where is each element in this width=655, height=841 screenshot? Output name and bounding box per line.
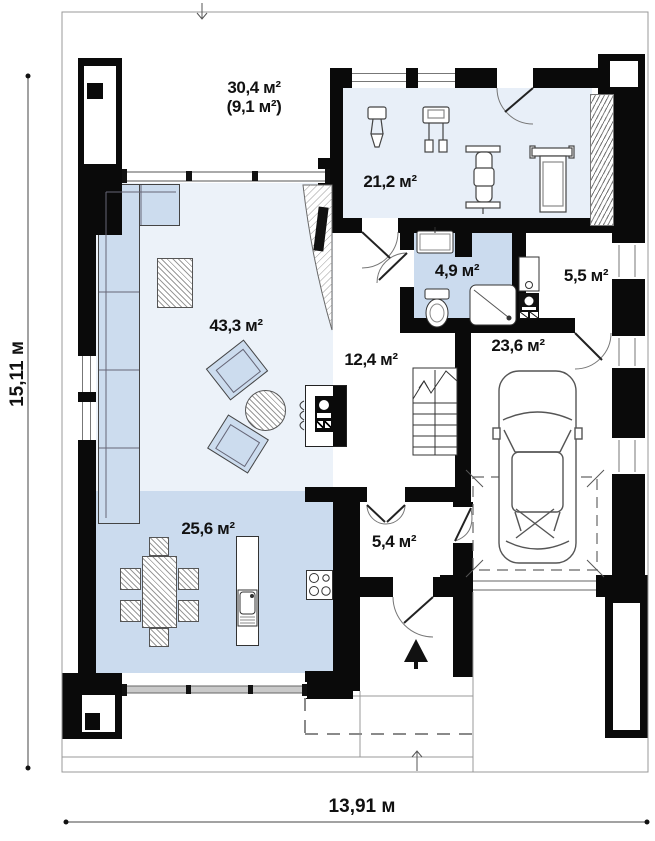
round-coffee-table — [245, 390, 286, 431]
wall-segment — [453, 502, 473, 507]
sliding-glass-door — [122, 682, 307, 698]
room-label-entry: 5,4 м² — [372, 532, 416, 552]
window — [78, 402, 96, 440]
window — [418, 68, 455, 88]
cooktop — [306, 570, 333, 600]
window — [612, 438, 645, 474]
room-label-gym: 21,2 м² — [363, 172, 416, 192]
wall-segment — [455, 222, 472, 257]
fireplace-vent — [317, 421, 323, 428]
wall-segment — [512, 222, 526, 332]
dining-chair — [178, 600, 199, 622]
wall-segment — [453, 543, 473, 577]
dimension-line-bottom — [64, 820, 650, 825]
terrace-area-secondary: (9,1 м²) — [227, 97, 282, 116]
room-label-utility: 5,5 м² — [564, 266, 608, 286]
door-opening — [575, 318, 612, 333]
room-label-terrace: 30,4 м² (9,1 м²) — [227, 78, 282, 116]
fireplace-side-panel — [333, 386, 346, 446]
rug — [157, 258, 193, 308]
gym-floor — [343, 88, 592, 218]
door-opening — [362, 218, 398, 233]
parking-zone — [473, 477, 597, 570]
window — [612, 243, 645, 279]
total-height-dimension: 15,11 м — [7, 314, 29, 434]
fireplace-tray — [317, 413, 331, 418]
staircase — [413, 368, 457, 455]
pillar-notch — [610, 61, 638, 87]
dining-chair — [149, 628, 169, 647]
pillar-window — [84, 66, 116, 164]
wall-segment — [596, 575, 648, 597]
total-width-dimension: 13,91 м — [329, 796, 396, 818]
wall-segment — [433, 577, 473, 597]
radiator — [590, 94, 614, 226]
floor-plan: 30,4 м² (9,1 м²) 21,2 м² 43,3 м² 12,4 м²… — [0, 0, 655, 841]
boundary-arrow-top — [197, 3, 207, 19]
driveway-pillar-inner — [613, 603, 640, 730]
wall-segment — [405, 487, 457, 502]
dining-table — [142, 556, 177, 628]
wall-segment — [455, 333, 471, 502]
entrance-arrow — [404, 639, 428, 669]
wall-segment — [305, 487, 367, 502]
wall-segment — [333, 577, 393, 597]
wall-segment — [453, 597, 473, 677]
door-opening — [400, 250, 414, 287]
parking-zone-corner-marks — [466, 470, 604, 577]
wall-segment — [78, 230, 96, 673]
window — [612, 336, 645, 368]
pillar-core — [87, 83, 103, 99]
garage-door — [473, 575, 596, 597]
glass-wall — [122, 169, 330, 183]
dining-chair — [120, 568, 141, 590]
dining-chair — [149, 537, 169, 556]
room-label-dining: 25,6 м² — [181, 519, 234, 539]
kitchen-island — [236, 536, 259, 646]
room-label-bathroom: 4,9 м² — [435, 261, 479, 281]
window — [352, 68, 406, 88]
dining-chair — [120, 600, 141, 622]
terrace-area: 30,4 м² — [227, 78, 282, 97]
room-label-hall: 12,4 м² — [344, 350, 397, 370]
dining-chair — [178, 568, 199, 590]
terrace-dashed-outline — [305, 698, 473, 734]
room-label-garage: 23,6 м² — [491, 336, 544, 356]
door-opening — [367, 487, 405, 502]
wall-segment — [612, 86, 645, 232]
car-top-view — [493, 371, 582, 563]
sofa-side-section — [98, 184, 140, 524]
boundary-arrow-bottom — [412, 751, 422, 771]
room-label-living: 43,3 м² — [209, 316, 262, 336]
door-opening — [497, 68, 533, 88]
fireplace-burner-icon — [319, 400, 329, 410]
window — [78, 356, 96, 392]
fireplace-vent — [325, 421, 331, 428]
pillar-core — [85, 713, 100, 730]
